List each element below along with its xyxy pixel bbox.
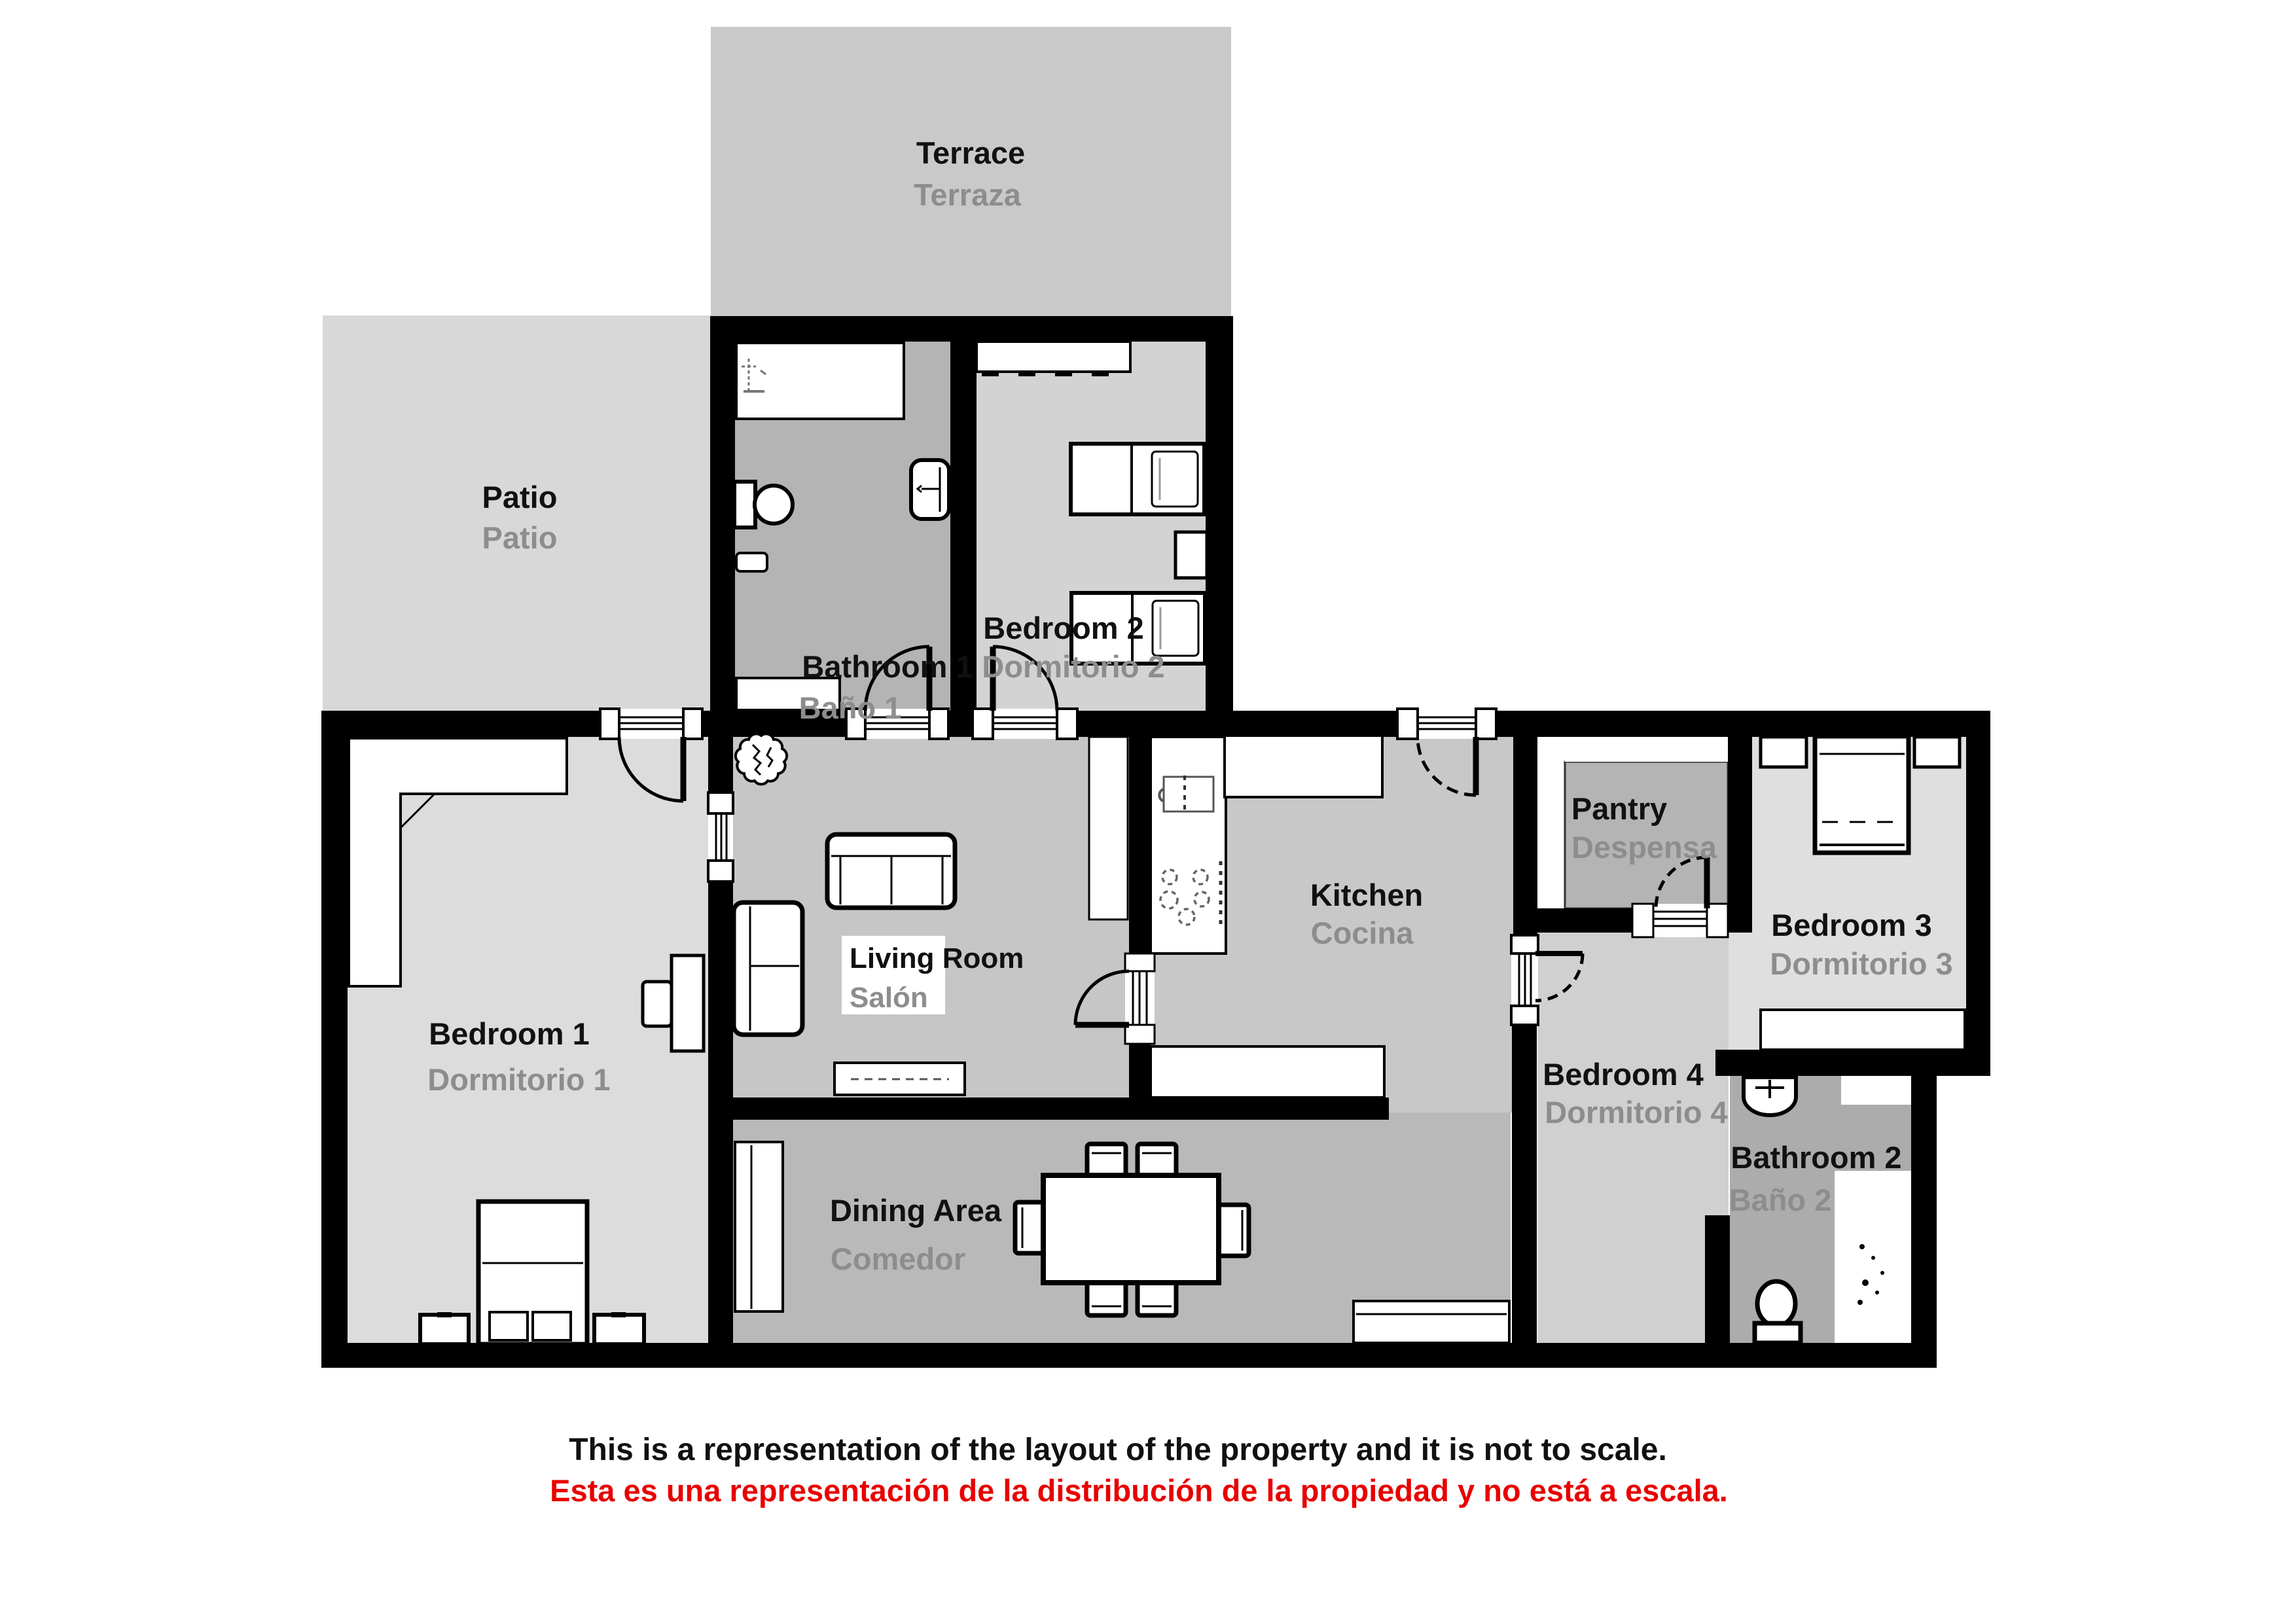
svg-text:Living Room: Living Room (850, 942, 1024, 974)
svg-text:Comedor: Comedor (831, 1241, 965, 1276)
svg-text:Dormitorio 1: Dormitorio 1 (427, 1062, 610, 1097)
svg-text:Kitchen: Kitchen (1310, 878, 1423, 912)
svg-text:Bathroom 2: Bathroom 2 (1731, 1140, 1901, 1175)
svg-text:Pantry: Pantry (1571, 791, 1667, 826)
svg-text:Cocina: Cocina (1311, 916, 1414, 950)
svg-text:Bedroom 4: Bedroom 4 (1543, 1057, 1704, 1092)
svg-text:Baño 1: Baño 1 (799, 690, 902, 725)
svg-text:Terraza: Terraza (914, 177, 1022, 212)
svg-text:Dining Area: Dining Area (830, 1193, 1002, 1228)
svg-text:Salón: Salón (850, 982, 928, 1014)
svg-text:This is a representation of th: This is a representation of the layout o… (569, 1433, 1667, 1467)
svg-text:Despensa: Despensa (1571, 830, 1717, 865)
svg-text:Bedroom 1: Bedroom 1 (429, 1016, 590, 1051)
svg-text:Dormitorio 4: Dormitorio 4 (1545, 1095, 1727, 1130)
svg-text:Baño 2: Baño 2 (1729, 1183, 1832, 1217)
svg-text:Terrace: Terrace (916, 135, 1025, 170)
svg-text:Dormitorio 3: Dormitorio 3 (1770, 946, 1952, 981)
svg-text:Bedroom 2: Bedroom 2 (983, 611, 1144, 645)
svg-text:Bathroom 1: Bathroom 1 (802, 649, 973, 684)
svg-text:Patio: Patio (482, 520, 558, 555)
svg-text:Bedroom 3: Bedroom 3 (1771, 908, 1932, 942)
svg-text:Patio: Patio (482, 480, 558, 514)
svg-text:Esta es una representación de: Esta es una representación de la distrib… (550, 1473, 1728, 1508)
svg-text:Dormitorio 2: Dormitorio 2 (982, 649, 1164, 684)
